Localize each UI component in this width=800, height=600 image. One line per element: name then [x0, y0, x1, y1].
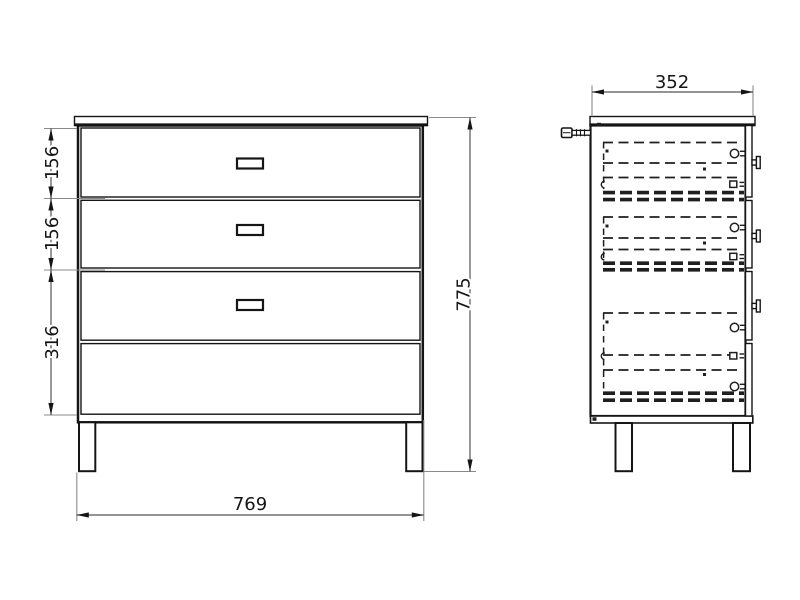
drawer-front-edge-2 [746, 201, 753, 269]
side-leg-left [616, 423, 633, 471]
front-leg-right [406, 422, 422, 471]
side-view [562, 117, 761, 472]
dimension-overall-width: 769 [77, 420, 424, 521]
drawer-front-edge-3 [746, 272, 753, 341]
front-leg-left [79, 422, 95, 471]
drawer-handle-3 [237, 300, 263, 310]
drawer-handle-1 [237, 159, 263, 169]
cam-fitting-icon [730, 382, 738, 390]
dim-label-316: 316 [42, 325, 63, 359]
cam-fitting-icon [730, 149, 738, 157]
dim-label-769: 769 [233, 494, 267, 515]
side-bottom-panel [591, 416, 753, 423]
bracket-fitting-icon [730, 253, 737, 259]
bracket-fitting-icon [730, 353, 737, 359]
drawer-front-edge-4 [746, 344, 753, 417]
drawing-canvas: 156 156 316 775 769 352 [0, 0, 800, 600]
drawer-front-edge-1 [746, 126, 753, 198]
dim-label-156-b: 156 [42, 217, 63, 251]
cam-fitting-icon [730, 223, 738, 231]
drawer-handle-2 [237, 225, 263, 235]
fastener-dot-top [597, 123, 601, 127]
dimension-depth: 352 [592, 72, 753, 116]
dimension-overall-height: 775 [424, 118, 476, 472]
cam-fitting-icon [730, 323, 738, 331]
dim-label-775: 775 [454, 277, 475, 311]
side-handle-3 [752, 300, 760, 312]
bracket-fitting-icon [730, 181, 737, 187]
side-handle-1 [752, 157, 760, 169]
dim-label-352: 352 [655, 72, 689, 93]
technical-drawing: 156 156 316 775 769 352 [0, 0, 800, 600]
dim-label-156-a: 156 [42, 146, 63, 180]
wall-screw [562, 128, 591, 138]
drawer-front-4 [81, 344, 420, 415]
front-view [75, 117, 428, 472]
side-handle-2 [752, 230, 760, 242]
fastener-dot-bottom [593, 417, 597, 421]
side-leg-right [733, 423, 750, 471]
dimension-lower-section-height: 316 [42, 270, 77, 415]
